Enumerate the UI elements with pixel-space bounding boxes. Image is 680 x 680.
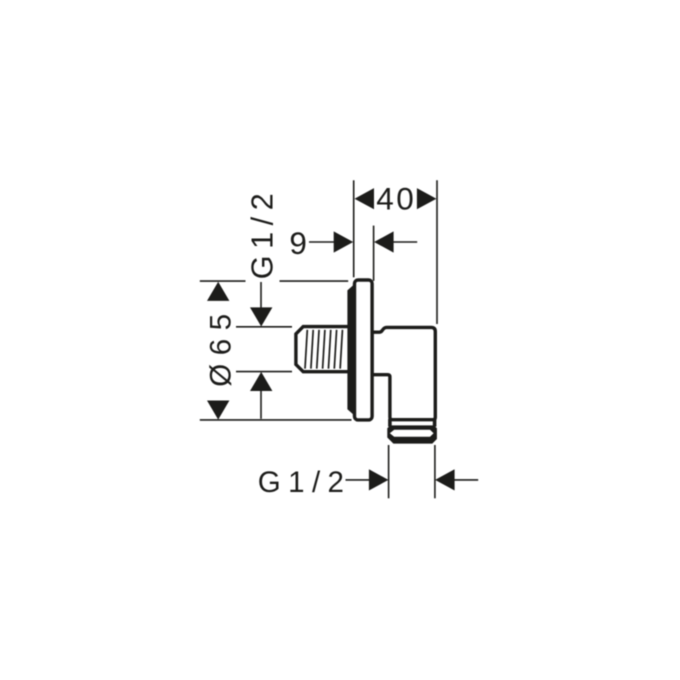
svg-text:40: 40 (376, 180, 416, 216)
svg-text:G1/2: G1/2 (258, 466, 352, 499)
svg-text:Ø65: Ø65 (204, 305, 237, 387)
svg-text:G1/2: G1/2 (246, 187, 280, 280)
svg-text:9: 9 (289, 225, 307, 261)
